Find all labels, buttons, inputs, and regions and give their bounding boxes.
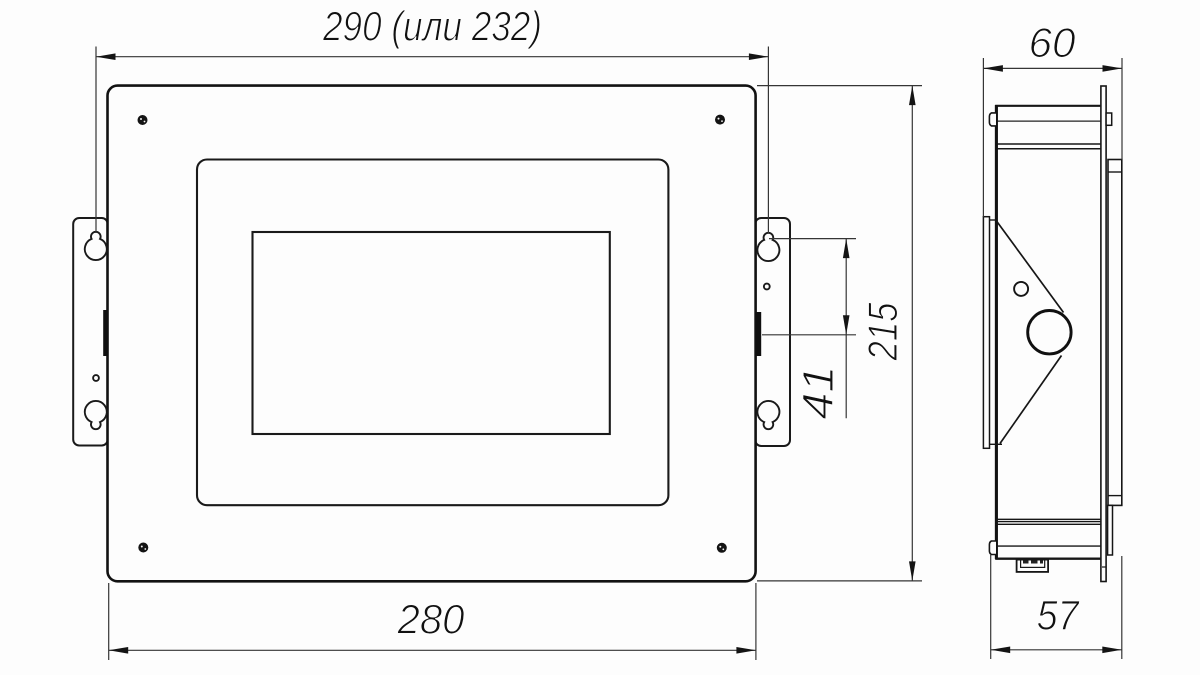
svg-text:57: 57 bbox=[1037, 592, 1080, 639]
svg-text:290 (или 232): 290 (или 232) bbox=[322, 3, 542, 50]
svg-text:60: 60 bbox=[1029, 19, 1077, 66]
svg-text:280: 280 bbox=[397, 596, 466, 643]
svg-text:41: 41 bbox=[794, 366, 843, 420]
svg-text:215: 215 bbox=[859, 302, 906, 361]
